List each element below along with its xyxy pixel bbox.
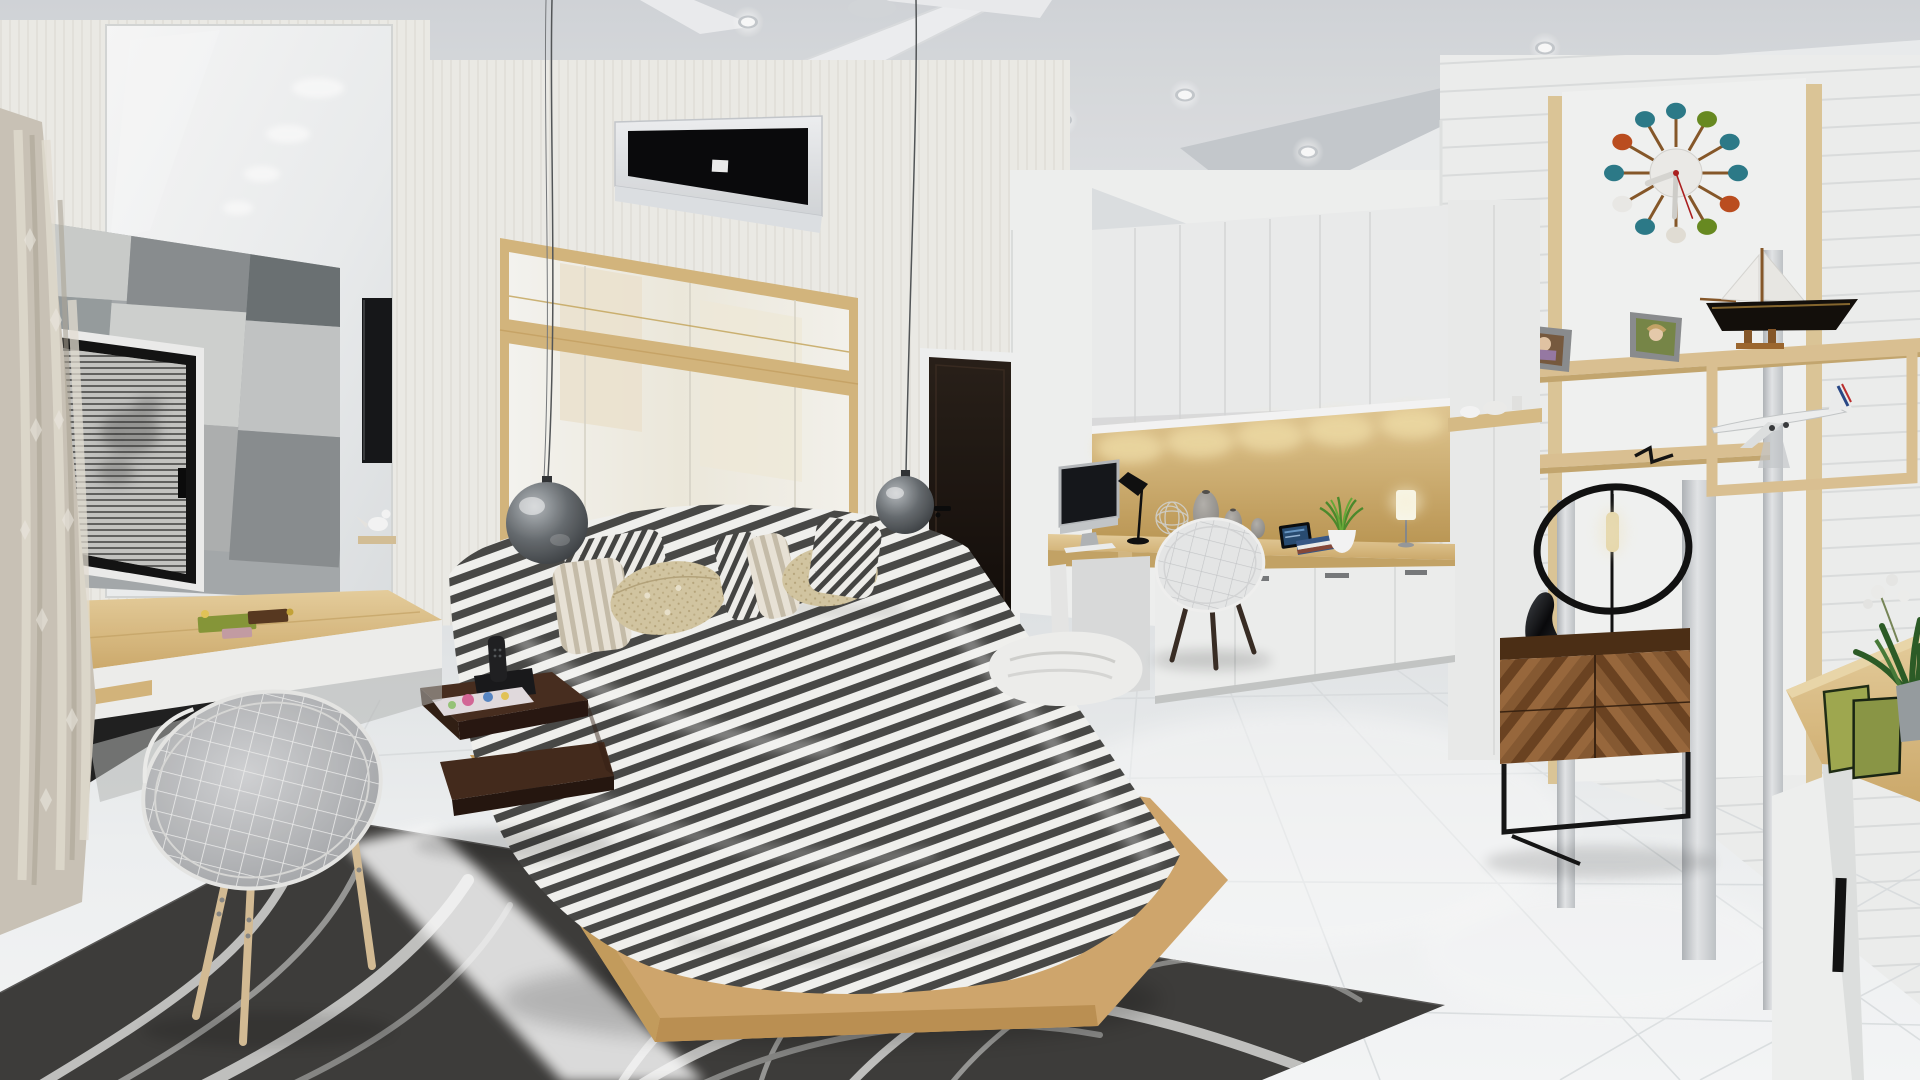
- bedroom-render: Modern bedroom interior — 3D architectur…: [0, 0, 1920, 1080]
- vignette: [0, 0, 1920, 1080]
